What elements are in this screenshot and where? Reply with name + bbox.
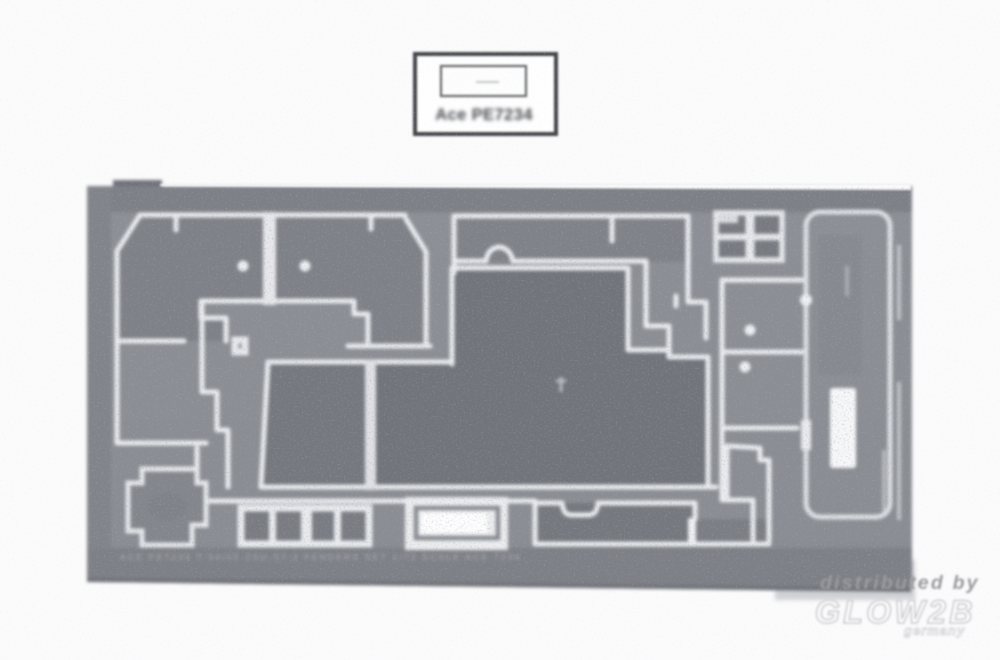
svg-text:germany: germany <box>903 623 965 638</box>
svg-text:distributed by: distributed by <box>820 572 980 594</box>
